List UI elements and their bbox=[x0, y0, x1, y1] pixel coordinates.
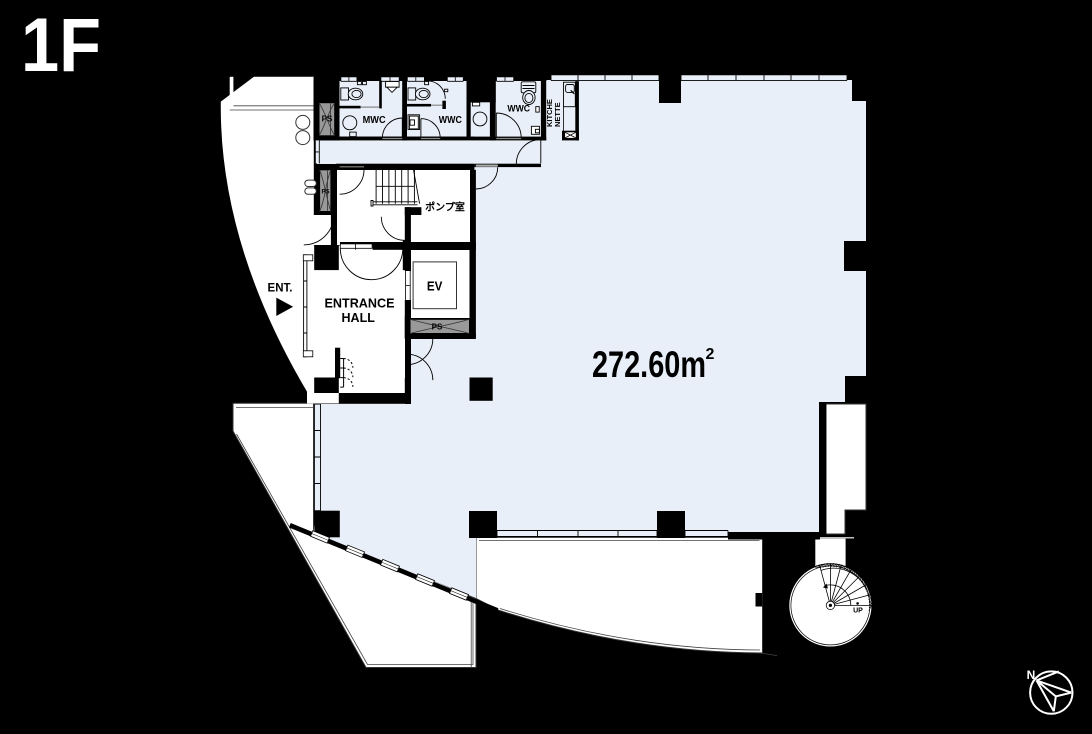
svg-text:WWC: WWC bbox=[507, 104, 530, 115]
svg-text:PS: PS bbox=[432, 323, 443, 332]
svg-text:NETTE: NETTE bbox=[553, 102, 562, 127]
svg-text:MWC: MWC bbox=[363, 114, 386, 126]
svg-text:UP: UP bbox=[853, 607, 863, 614]
svg-text:PS: PS bbox=[321, 190, 329, 196]
svg-text:ENTRANCE: ENTRANCE bbox=[325, 297, 395, 311]
svg-text:EV: EV bbox=[427, 280, 443, 294]
svg-text:2: 2 bbox=[706, 346, 715, 363]
svg-text:ポンプ室: ポンプ室 bbox=[425, 201, 465, 214]
svg-text:WWC: WWC bbox=[439, 114, 462, 126]
svg-text:PS: PS bbox=[322, 115, 333, 124]
svg-text:272.60m: 272.60m bbox=[592, 344, 706, 385]
svg-text:ENT.: ENT. bbox=[268, 283, 293, 295]
svg-text:1F: 1F bbox=[21, 3, 101, 88]
svg-text:HALL: HALL bbox=[342, 311, 376, 325]
